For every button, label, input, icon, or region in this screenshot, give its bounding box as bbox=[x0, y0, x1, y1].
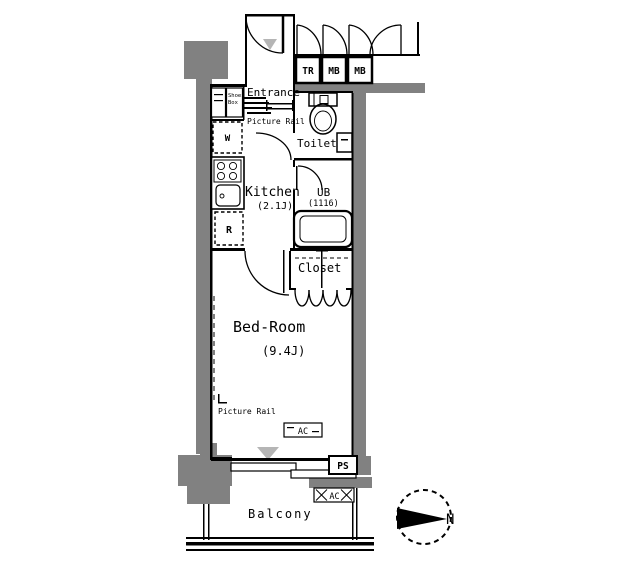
shoes-box-label-1: Shoes bbox=[228, 93, 245, 99]
compass-north-arrow bbox=[397, 508, 447, 529]
kitchen-size-label: (2.1J) bbox=[257, 201, 293, 212]
bath-label: UB bbox=[317, 186, 331, 199]
shoes-box-cabinet-left bbox=[212, 88, 226, 117]
shoes-box-label-2: Box bbox=[228, 100, 239, 106]
wall-left-strip bbox=[196, 78, 212, 454]
pipe-space-label: PS bbox=[337, 461, 349, 472]
ac-balcony-label: AC bbox=[329, 492, 339, 502]
ac-unit-balcony: AC bbox=[314, 488, 354, 502]
corridor-boxes: TR MB MB bbox=[296, 57, 372, 83]
trunk-room-label: TR bbox=[302, 66, 314, 77]
toilet-label: Toilet bbox=[297, 137, 337, 150]
entrance-label: Entrance bbox=[247, 86, 300, 99]
bedroom-door-arc bbox=[245, 251, 289, 295]
bedroom-label: Bed-Room bbox=[233, 318, 305, 336]
balcony-rail-line-2 bbox=[186, 542, 374, 546]
picture-rail-hall-label: Picture Rail bbox=[247, 117, 305, 126]
kitchen-label: Kitchen bbox=[245, 185, 300, 200]
shoes-box-area: Shoes Box bbox=[212, 88, 245, 117]
toilet-cabinet bbox=[337, 133, 352, 152]
wall-ps-stub bbox=[357, 456, 371, 475]
balcony-rail-line-3 bbox=[186, 549, 374, 551]
entrance-door-arc bbox=[246, 16, 283, 53]
closet-fold-door-1 bbox=[295, 290, 309, 306]
mailbox-1-label: MB bbox=[328, 66, 340, 77]
mailbox-2-label: MB bbox=[354, 66, 366, 77]
floor-plan-drawing: TR MB MB Shoes Box W bbox=[0, 0, 640, 569]
compass-north-label: N bbox=[446, 512, 454, 528]
window-panel-left bbox=[231, 463, 296, 471]
kitchen-fixtures: W R bbox=[212, 122, 245, 245]
entrance-steps bbox=[244, 97, 294, 114]
corridor-right-door-arc bbox=[370, 25, 401, 55]
bathtub bbox=[294, 211, 352, 247]
closet-label: Closet bbox=[298, 261, 341, 275]
ac-unit-bedroom: AC bbox=[284, 423, 322, 437]
mb2-door-arc bbox=[349, 25, 373, 55]
toilet-bowl bbox=[310, 104, 336, 134]
wall-top-left-block bbox=[184, 41, 228, 79]
wall-bottom-left-stub-bottom bbox=[187, 486, 230, 504]
balcony-label: Balcony bbox=[248, 507, 313, 521]
mb1-door-arc bbox=[323, 25, 347, 55]
tr-door-arc bbox=[297, 25, 321, 55]
wall-right-strip bbox=[353, 93, 366, 456]
compass: N bbox=[397, 490, 454, 544]
closet-fold-door-2 bbox=[309, 290, 323, 306]
bedroom-size-label: (9.4J) bbox=[262, 344, 305, 358]
refrigerator-label: R bbox=[226, 225, 233, 236]
picture-rail-bedroom-label: Picture Rail bbox=[218, 407, 276, 416]
washing-machine-label: W bbox=[225, 134, 231, 144]
toilet-door-arc bbox=[256, 133, 291, 160]
ac-bedroom-label: AC bbox=[298, 427, 308, 437]
closet-fold-door-4 bbox=[337, 290, 351, 306]
bath-size-label: (1116) bbox=[308, 199, 339, 209]
floor-plan-page: TR MB MB Shoes Box W bbox=[0, 0, 640, 569]
wall-bottom-left-stub-top bbox=[200, 443, 217, 457]
wall-bottom-right-bar bbox=[309, 477, 372, 488]
closet-fold-door-3 bbox=[323, 290, 337, 306]
balcony-rail-line-1 bbox=[186, 537, 374, 539]
